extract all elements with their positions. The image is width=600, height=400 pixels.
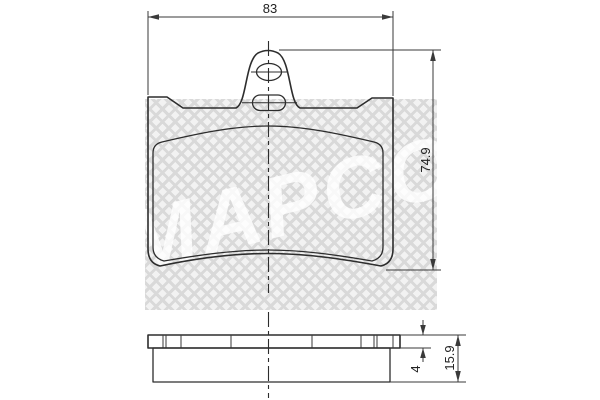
arrow-right xyxy=(382,14,393,20)
dimension-backplate-4: 4 xyxy=(408,320,426,373)
dimension-height-74-9: 74.9 xyxy=(279,50,441,270)
side-backplate xyxy=(148,335,400,348)
dimension-height-label: 74.9 xyxy=(418,147,433,172)
arrow-top xyxy=(455,335,461,346)
dimension-total-label: 15.9 xyxy=(442,345,457,370)
backplate-outline xyxy=(148,51,393,267)
arrow-bottom xyxy=(455,371,461,382)
dimension-width-label: 83 xyxy=(263,1,277,16)
arrow-up xyxy=(420,348,426,358)
side-friction-material xyxy=(153,348,390,382)
dimension-total-15-9: 15.9 xyxy=(442,335,461,382)
top-view: 83 74.9 xyxy=(148,1,441,293)
dimension-backplate-label: 4 xyxy=(408,365,423,372)
dimension-width-83: 83 xyxy=(148,1,393,96)
brake-pad-technical-drawing: MAPCO 83 74.9 xyxy=(0,0,600,400)
side-backplate-divisions xyxy=(163,335,393,348)
lug-slot-hole xyxy=(242,95,297,111)
drawing-linework: 83 74.9 xyxy=(0,0,600,400)
lug-round-hole xyxy=(251,64,288,81)
arrow-left xyxy=(148,14,159,20)
side-view: 4 15.9 xyxy=(148,312,466,398)
arrow-down xyxy=(420,325,426,335)
arrow-top xyxy=(430,50,436,61)
arrow-bottom xyxy=(430,259,436,270)
